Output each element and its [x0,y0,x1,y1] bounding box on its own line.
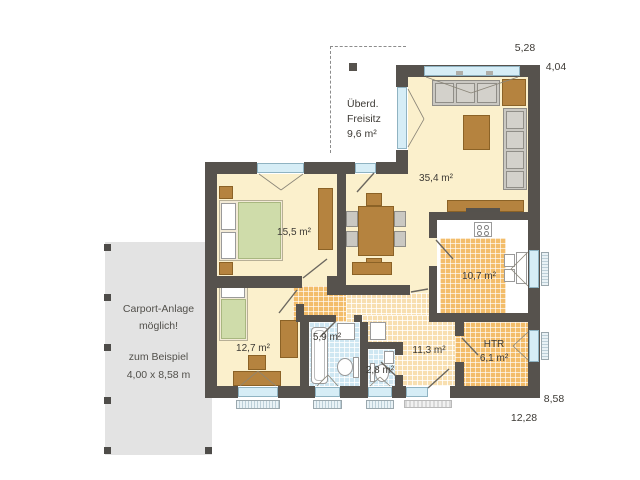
shutter-box [541,252,549,286]
shutter-box [313,400,342,409]
room-label-living: 35,4 m² [410,173,462,184]
entrance-door [406,387,428,397]
freisitz-label-line1: Überd. [347,98,379,110]
sideboard [352,262,392,275]
kitchen-table [516,252,527,284]
carport-note-line3: zum Beispiel [105,351,212,363]
wall [327,285,410,295]
wall [304,162,355,174]
freisitz-dashed-top [330,46,406,47]
wardrobe [280,320,298,358]
pillow [221,287,245,298]
carport-note-line2: möglich! [105,320,212,332]
pillow [221,203,236,230]
wall [205,386,238,398]
cabinet [502,79,526,106]
desk [233,371,281,386]
wall [395,375,403,386]
wall [395,342,403,355]
coffee-table [463,115,490,150]
kitchen-window [529,250,539,288]
dimension-width-top: 5,28 [510,42,540,54]
child-room-window [238,387,278,397]
room-label-bedroom: 15,5 m² [268,227,320,238]
carport-post [104,244,111,251]
kitchen-chair [504,269,515,282]
wall [217,276,302,288]
dining-chair [346,231,358,247]
dimension-height-top-right: 4,04 [541,61,571,73]
wall [429,313,528,322]
hall-cabinet [370,322,386,340]
wall [455,362,464,386]
living-top-window [424,66,520,76]
freisitz-post-marker [349,63,357,71]
carport-area [105,242,212,455]
floor-plan-canvas: Carport-Anlage möglich! zum Beispiel 4,0… [0,0,640,480]
wall [278,386,315,398]
room-label-hall: 11,3 m² [403,345,455,356]
dining-chair [346,211,358,227]
htr-window [529,330,539,362]
wall [396,65,408,87]
wall [429,266,437,313]
room-label-wc: 2,8 m² [358,365,402,376]
window-mullion [486,71,493,75]
wardrobe [318,188,333,250]
freisitz-door [355,163,376,173]
wall [376,162,408,174]
room-label-kitchen: 10,7 m² [453,271,505,282]
wall [300,315,336,322]
nightstand [219,262,233,275]
shutter-box [366,400,394,409]
entrance-doormat [404,400,452,408]
wall [429,212,528,220]
desk-chair [248,355,266,370]
shutter-box [236,400,280,409]
dimension-height-right: 8,58 [539,393,569,405]
freisitz-label-line3: 9,6 m² [347,128,377,140]
stove [474,222,492,237]
bedroom-window [257,163,304,173]
carport-post [104,294,111,301]
carport-post [104,447,111,454]
toilet [337,358,353,376]
shutter-box [541,332,549,360]
wall [455,322,464,336]
room-label-htr-name: HTR [468,339,520,350]
dining-chair [394,231,406,247]
wall [300,315,309,386]
dining-chair [394,211,406,227]
window-mullion [456,71,463,75]
bed-blanket [221,299,246,339]
freisitz-dashed-left [330,46,331,153]
entrance-opening [428,386,450,398]
dining-chair [366,193,382,206]
carport-note-line4: 4,00 x 8,58 m [105,369,212,381]
wc-sink [384,351,394,364]
pillow [221,232,236,259]
kitchen-chair [504,254,515,267]
living-terrace-window [397,87,407,149]
room-label-bath: 5,9 m² [305,332,349,343]
carport-note-line1: Carport-Anlage [105,303,212,315]
bath-window [315,387,340,397]
wall [360,322,368,386]
carport-post [104,397,111,404]
wc-window [368,387,392,397]
wall [354,315,362,322]
nightstand [219,186,233,199]
freisitz-label-line2: Freisitz [347,113,381,125]
sofa [432,80,500,106]
dimension-width-bottom: 12,28 [506,412,542,424]
dining-table [358,206,394,256]
room-label-child-room: 12,7 m² [227,343,279,354]
wall [337,174,346,276]
wall [392,386,406,398]
room-label-htr-area: 6,1 m² [468,353,520,364]
carport-post [205,447,212,454]
wall [340,386,368,398]
wall [205,162,217,398]
carport-post [104,344,111,351]
chaise-shelf [503,108,527,190]
wall [450,386,540,398]
